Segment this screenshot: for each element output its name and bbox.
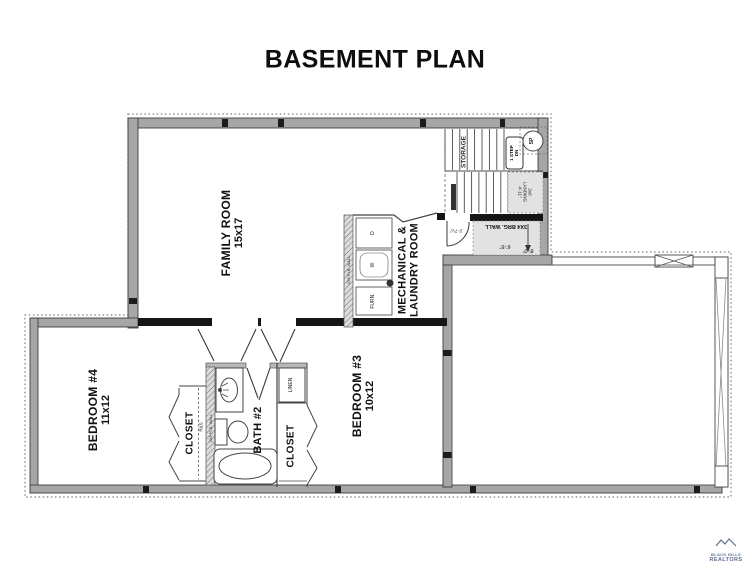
stair-door-dim: 2'-7¼" bbox=[450, 228, 463, 233]
furnace-label: FURN. bbox=[371, 293, 377, 308]
bearing-wall-label: 3X4 BRG. WALL bbox=[485, 223, 527, 229]
closet-bed3-label: CLOSET bbox=[285, 425, 296, 468]
closet-bed3-walls bbox=[277, 363, 317, 487]
family-room-label: FAMILY ROOM 15x17 bbox=[220, 190, 246, 277]
dryer-label: D bbox=[371, 231, 377, 235]
floor-plan-drawing bbox=[0, 0, 750, 563]
stair-handrail bbox=[451, 184, 456, 210]
dim-a-label: 6'-5" bbox=[500, 243, 511, 249]
toilet-bowl bbox=[228, 421, 248, 443]
basement-floor-plan-page: BASEMENT PLAN FAMILY ROOM 15x17 MECHANIC… bbox=[0, 0, 750, 563]
landing-label: 2x6 LANDING 4'-11" bbox=[517, 182, 532, 202]
one-step-dn-label: 1 STEP DN bbox=[509, 145, 519, 161]
plumbing-wall-label-bath: 2X6 PLB. WALL bbox=[208, 414, 212, 443]
washer-label: W bbox=[371, 263, 377, 268]
realtor-watermark-logo: BLACK HILLS REALTORS bbox=[701, 534, 750, 563]
page-title: BASEMENT PLAN bbox=[265, 46, 485, 75]
logo-roof-icon bbox=[715, 538, 737, 547]
garage-area bbox=[452, 255, 728, 487]
sump-pump-label: SP bbox=[530, 138, 536, 145]
mechanical-room bbox=[344, 213, 437, 327]
bedroom4-label: BEDROOM #4 11x12 bbox=[87, 369, 113, 451]
bathtub-basin bbox=[219, 453, 271, 479]
rod-and-shelf-label: R&S bbox=[198, 422, 203, 431]
faucet bbox=[218, 388, 222, 392]
closet-bed4-label: CLOSET bbox=[184, 412, 195, 455]
toilet-tank bbox=[215, 419, 227, 445]
bedroom3-label: BEDROOM #3 10x12 bbox=[351, 355, 377, 437]
mechanical-room-label: MECHANICAL & LAUNDRY ROOM bbox=[397, 223, 422, 317]
bath2-label: BATH #2 bbox=[252, 406, 264, 453]
plumbing-wall-label-mech: 2X6 PLB. WALL bbox=[346, 256, 350, 285]
floor-drain bbox=[387, 280, 394, 287]
dim-b-label: 8'-0" bbox=[523, 247, 534, 253]
storage-label: STORAGE bbox=[460, 136, 467, 168]
linen-label: LINEN bbox=[289, 378, 295, 393]
